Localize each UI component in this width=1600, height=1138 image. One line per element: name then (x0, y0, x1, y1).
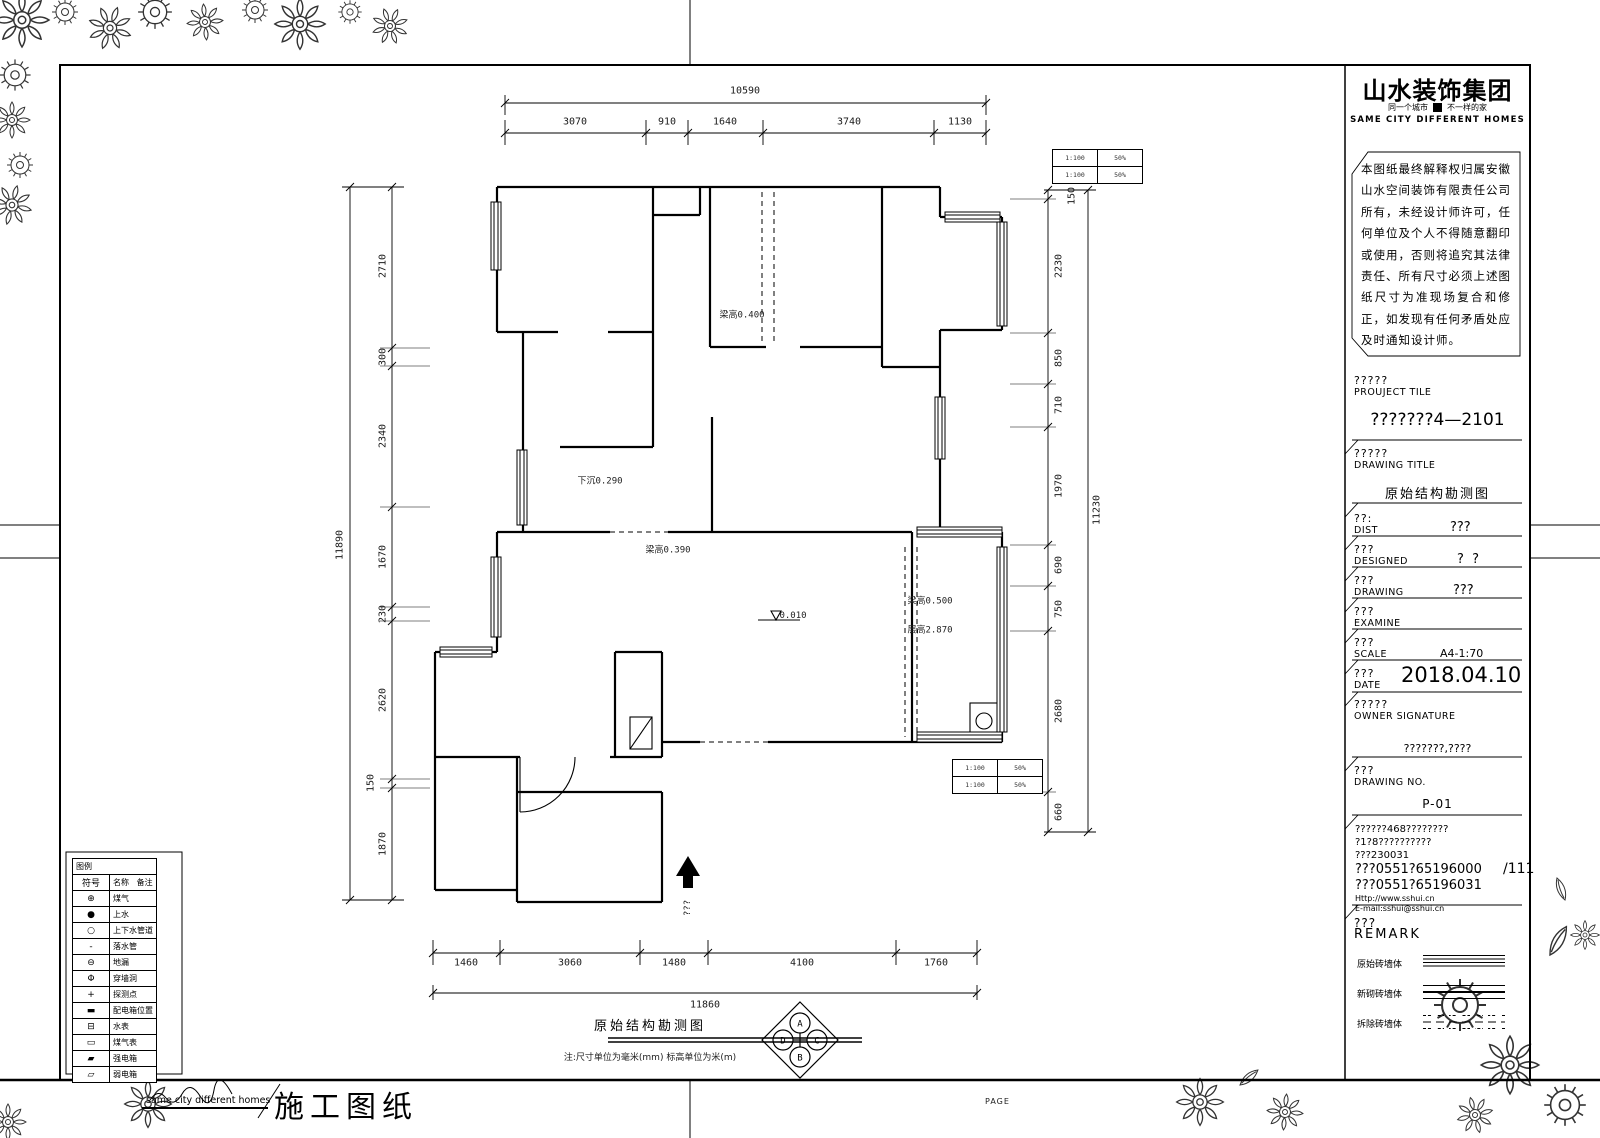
sunken-floor-label: 下沉0.290 (577, 474, 622, 487)
floor-height-label: 层高2.870 (907, 623, 952, 636)
dim-right-seg: 150 (1067, 187, 1078, 205)
legend-label: 煤气 (110, 891, 157, 907)
dim-right-seg: 850 (1054, 349, 1065, 367)
legend-row: ⊖地漏 (73, 955, 157, 971)
logo-slogan-en: SAME CITY DIFFERENT HOMES (1345, 115, 1530, 125)
contact-line: ?1?8?????????? (1355, 836, 1482, 849)
legend-col-symbol: 符号 (73, 875, 110, 891)
dim-left-seg: 230 (378, 605, 389, 623)
orientation-compass-icon: A C B D (762, 1002, 838, 1078)
note-cell: 1:100 (953, 777, 998, 794)
legend-col-name: 名称 备注 (110, 875, 157, 891)
note-cell: 50% (1098, 150, 1143, 167)
logo-square-icon (1433, 103, 1442, 112)
dim-right-seg: 660 (1054, 803, 1065, 821)
logo-slogan-left: 同一个城市 (1388, 102, 1428, 113)
legend-col-name-text: 名称 (113, 878, 129, 887)
scale-value: A4-1:70 (1440, 647, 1483, 660)
beam-height-label: 梁高0.390 (645, 543, 690, 556)
field-drawing-title: ????? DRAWING TITLE (1354, 448, 1435, 472)
dim-bottom-seg: 1760 (924, 958, 948, 969)
wall-type-demolish-icon (1423, 1015, 1505, 1029)
dim-bottom-seg: 3060 (558, 958, 582, 969)
field-date: ??? DATE (1354, 668, 1381, 692)
footer-page-label: PAGE (985, 1097, 1010, 1106)
water-supply-icon: ● (73, 907, 110, 923)
plan-note-table-bottom: 1:100 50% 1:100 50% (952, 759, 1043, 794)
legend-label: 水表 (110, 1019, 157, 1035)
company-logo: 山水装饰集团 (1345, 71, 1530, 106)
copyright-disclaimer: 本图纸最终解释权归属安徽山水空间装饰有限责任公司所有，未经设计师许可，任何单位及… (1361, 159, 1511, 352)
dim-left-seg: 300 (378, 348, 389, 366)
gas-meter-icon: ▭ (73, 1035, 110, 1051)
contact-phone: ???0551?65196000 (1355, 862, 1482, 878)
dim-right-seg: 690 (1054, 556, 1065, 574)
legend-label: 探测点 (110, 987, 157, 1003)
entrance-arrow-icon (676, 856, 700, 888)
field-drawing: ??? DRAWING (1354, 575, 1404, 599)
window-symbols (440, 202, 1007, 742)
legend-label: 煤气表 (110, 1035, 157, 1051)
note-cell: 50% (998, 760, 1043, 777)
logo-slogan-row: 同一个城市 不一样的家 (1345, 102, 1530, 113)
drawing-sheet: A C B D 10590 3070 910 1640 3740 1130 11… (0, 0, 1600, 1138)
footer-sheet-type: 施工图纸 (274, 1082, 418, 1126)
field-designed: ??? DESIGNED (1354, 544, 1408, 568)
legend-row: Φ穿墙洞 (73, 971, 157, 987)
note-cell: 1:100 (953, 760, 998, 777)
legend-label: 落水管 (110, 939, 157, 955)
dim-top-total: 10590 (730, 86, 760, 97)
dim-right-seg: 2680 (1054, 699, 1065, 723)
dim-right-total: 11230 (1092, 495, 1103, 525)
level-mark-label: 0.010 (779, 611, 806, 621)
field-owner-signature: ????? OWNER SIGNATURE (1354, 699, 1456, 723)
contact-website: Http://www.sshui.cn (1355, 894, 1482, 904)
gas-valve-icon: ⊕ (73, 891, 110, 907)
beam-height-label: 梁高0.400 (719, 308, 764, 321)
distribution-box-icon: ▬ (73, 1003, 110, 1019)
dim-left-seg: 1870 (378, 832, 389, 856)
downpipe-icon: - (73, 939, 110, 955)
dim-top-seg: 910 (658, 117, 676, 128)
legend-row: ▬配电箱位置 (73, 1003, 157, 1019)
note-cell: 50% (1098, 167, 1143, 184)
drawing-title-value: 原始结构勘测图 (1345, 483, 1530, 502)
page-number: /111 (1503, 861, 1534, 877)
legend-label: 强电箱 (110, 1051, 157, 1067)
legend-row: ▱弱电箱 (73, 1067, 157, 1083)
project-value: ???????4—2101 (1345, 410, 1530, 430)
field-remark: ??? REMARK (1354, 917, 1421, 941)
probe-point-icon: + (73, 987, 110, 1003)
dimension-lines (342, 95, 1096, 1000)
wall-hole-icon: Φ (73, 971, 110, 987)
legend-label: 上水 (110, 907, 157, 923)
logo-slogan-right: 不一样的家 (1447, 102, 1487, 113)
floor-drain-icon: ⊖ (73, 955, 110, 971)
dim-right-seg: 1970 (1054, 474, 1065, 498)
date-value: 2018.04.10 (1401, 663, 1521, 687)
dim-left-seg: 2710 (378, 254, 389, 278)
note-cell: 1:100 (1053, 167, 1098, 184)
remark-row-label: 拆除砖墙体 (1357, 1017, 1402, 1030)
beam-height-label: 梁高0.500 (907, 594, 952, 607)
dim-left-seg: 1670 (378, 545, 389, 569)
compass-letter-right: C (814, 1037, 819, 1047)
dim-left-total: 11890 (335, 530, 346, 560)
dim-top-seg: 3070 (563, 117, 587, 128)
drawing-caption-title: 原始结构勘测图 (594, 1015, 706, 1034)
field-dist: ??: DIST (1354, 513, 1378, 537)
legend-label: 上下水管道 (110, 923, 157, 939)
field-examine: ??? EXAMINE (1354, 606, 1401, 630)
field-project: ????? PROUJECT TILE (1354, 375, 1431, 399)
legend-row: ▰强电箱 (73, 1051, 157, 1067)
drawing-no-value: P-01 (1345, 797, 1530, 811)
drawing-no-header: ???????,???? (1345, 742, 1530, 755)
water-pipe-icon: ○ (73, 923, 110, 939)
dim-right-seg: 2230 (1054, 254, 1065, 278)
legend-row: ▭煤气表 (73, 1035, 157, 1051)
dim-bottom-seg: 1480 (662, 958, 686, 969)
weak-power-box-icon: ▱ (73, 1067, 110, 1083)
water-meter-icon: ⊟ (73, 1019, 110, 1035)
legend-row: ●上水 (73, 907, 157, 923)
dim-left-seg: 2620 (378, 688, 389, 712)
dim-right-seg: 710 (1054, 396, 1065, 414)
legend-label: 配电箱位置 (110, 1003, 157, 1019)
dim-bottom-total: 11860 (690, 1000, 720, 1011)
company-contact-block: ??????468???????? ?1?8?????????? ???2300… (1355, 823, 1482, 914)
dim-left-seg: 150 (366, 774, 377, 792)
compass-letter-top: A (797, 1020, 803, 1030)
plan-beam-dashes (560, 192, 917, 742)
drawing-value: ??? (1453, 583, 1474, 598)
field-scale: ??? SCALE (1354, 637, 1387, 661)
title-block: 山水装饰集团 同一个城市 不一样的家 SAME CITY DIFFERENT H… (1345, 65, 1530, 1080)
legend-row: -落水管 (73, 939, 157, 955)
compass-letter-left: D (780, 1037, 785, 1047)
footer-slogan: same city different homes (146, 1095, 270, 1106)
designed-value: ? ? (1457, 552, 1479, 567)
note-cell: 50% (998, 777, 1043, 794)
dim-right-seg: 750 (1054, 600, 1065, 618)
legend-row: ⊕煤气 (73, 891, 157, 907)
legend-col-remark-text: 备注 (137, 878, 153, 887)
contact-line: ???230031 (1355, 849, 1482, 862)
drawing-caption-rules (142, 1038, 862, 1118)
dim-bottom-seg: 4100 (790, 958, 814, 969)
legend-row: ⊟水表 (73, 1019, 157, 1035)
remark-row-label: 新砌砖墙体 (1357, 987, 1402, 1000)
remark-row-label: 原始砖墙体 (1357, 957, 1402, 970)
contact-phone: ???0551?65196031 (1355, 878, 1482, 894)
wall-type-original-icon (1423, 955, 1505, 967)
legend-label: 穿墙洞 (110, 971, 157, 987)
dim-top-seg: 1640 (713, 117, 737, 128)
dim-bottom-seg: 1460 (454, 958, 478, 969)
plan-note-table-top: 1:100 50% 1:100 50% (1052, 149, 1143, 184)
dim-left-seg: 2340 (378, 424, 389, 448)
dim-top-seg: 3740 (837, 117, 861, 128)
compass-letter-bottom: B (797, 1054, 802, 1064)
contact-email: E-mail:sshui@sshui.cn (1355, 904, 1482, 914)
legend-row: +探测点 (73, 987, 157, 1003)
legend-label: 弱电箱 (110, 1067, 157, 1083)
legend-label: 地漏 (110, 955, 157, 971)
legend-table: 图例 符号 名称 备注 ⊕煤气 ●上水 ○上下水管道 -落水管 ⊖地漏 Φ穿墙洞… (72, 858, 157, 1083)
plan-fixtures (520, 611, 1000, 812)
drawing-caption-note: 注:尺寸单位为毫米(mm) 标高单位为米(m) (564, 1050, 736, 1063)
legend-row: ○上下水管道 (73, 923, 157, 939)
wall-type-new-icon (1423, 985, 1505, 999)
strong-power-box-icon: ▰ (73, 1051, 110, 1067)
field-drawing-no: ??? DRAWING NO. (1354, 765, 1426, 789)
legend-title: 图例 (73, 859, 157, 875)
dist-value: ??? (1450, 520, 1471, 535)
contact-line: ??????468???????? (1355, 823, 1482, 836)
entrance-label: ??? (683, 900, 693, 916)
dim-top-seg: 1130 (948, 117, 972, 128)
note-cell: 1:100 (1053, 150, 1098, 167)
